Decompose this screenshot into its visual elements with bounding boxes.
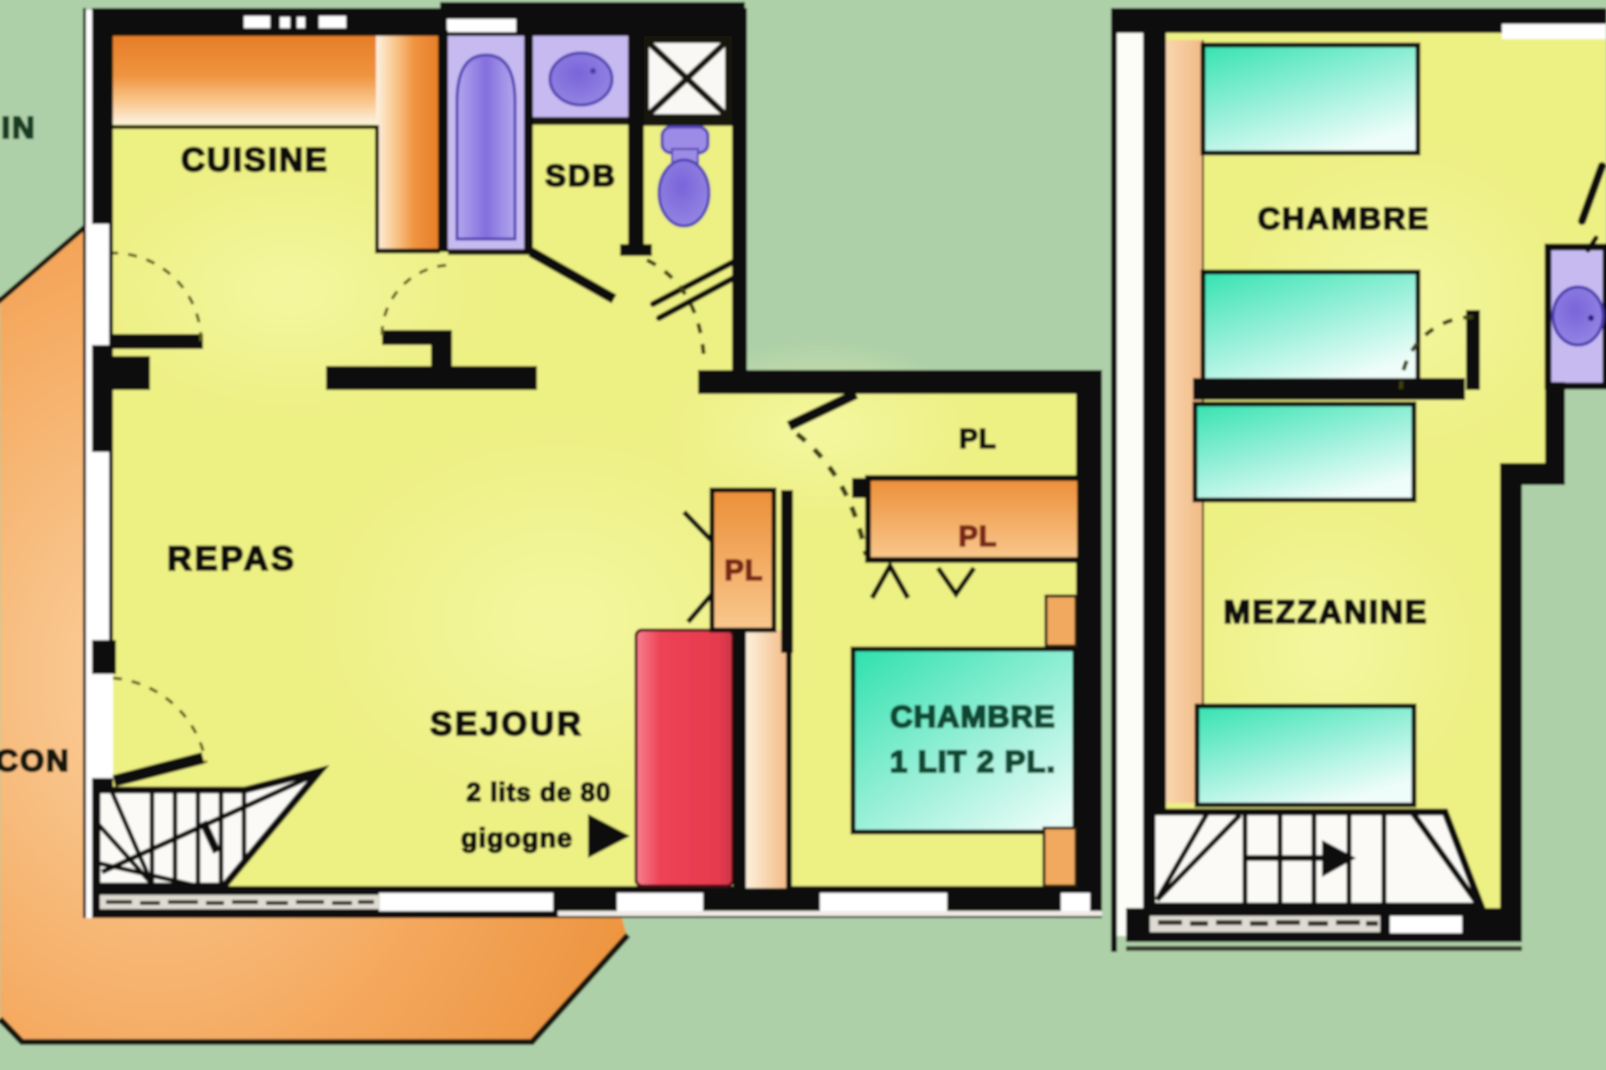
svg-text:gigogne: gigogne bbox=[461, 823, 573, 853]
svg-text:SDB: SDB bbox=[545, 158, 616, 193]
svg-text:PL: PL bbox=[958, 521, 997, 553]
svg-text:CON: CON bbox=[0, 743, 70, 778]
svg-text:CUISINE: CUISINE bbox=[181, 141, 329, 178]
svg-text:SEJOUR: SEJOUR bbox=[430, 705, 584, 742]
svg-text:MEZZANINE: MEZZANINE bbox=[1224, 594, 1429, 630]
svg-text:IN: IN bbox=[2, 110, 37, 145]
svg-text:REPAS: REPAS bbox=[167, 540, 297, 578]
svg-text:CHAMBRE: CHAMBRE bbox=[890, 699, 1055, 734]
svg-text:CHAMBRE: CHAMBRE bbox=[1258, 201, 1430, 236]
svg-text:PL: PL bbox=[959, 423, 997, 454]
svg-text:PL: PL bbox=[724, 555, 763, 587]
svg-text:2 lits de 80: 2 lits de 80 bbox=[467, 777, 612, 807]
svg-text:1 LIT 2 PL.: 1 LIT 2 PL. bbox=[890, 744, 1056, 779]
